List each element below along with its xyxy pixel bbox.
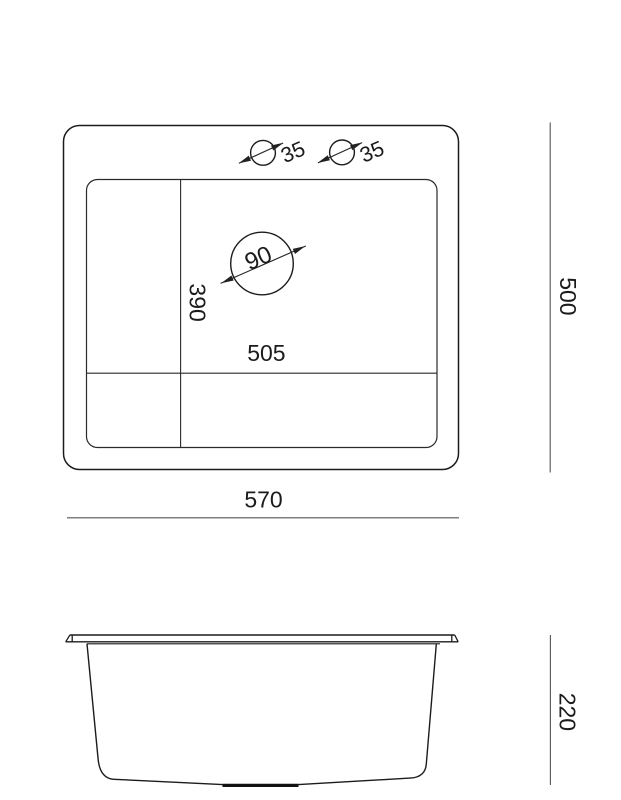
svg-text:220: 220	[555, 693, 581, 731]
svg-text:570: 570	[244, 486, 282, 512]
svg-text:390: 390	[185, 283, 211, 321]
svg-text:505: 505	[247, 340, 285, 366]
svg-text:500: 500	[555, 277, 581, 315]
